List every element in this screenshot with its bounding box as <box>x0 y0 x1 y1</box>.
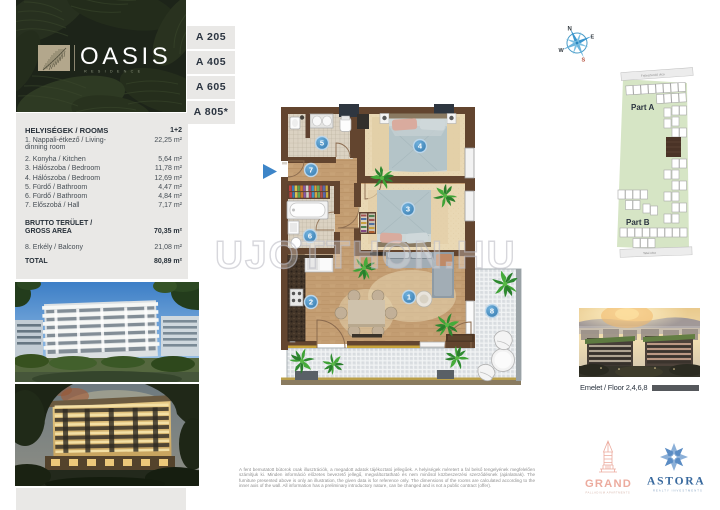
svg-text:2: 2 <box>309 298 313 307</box>
svg-text:S: S <box>582 58 586 64</box>
svg-text:Tatai utca: Tatai utca <box>643 251 656 255</box>
svg-text:8: 8 <box>490 307 494 316</box>
svg-text:ASTORA: ASTORA <box>647 476 705 488</box>
svg-text:N: N <box>568 27 572 33</box>
svg-text:PALLADIUM APARTMENTS: PALLADIUM APARTMENTS <box>586 491 631 495</box>
svg-text:7: 7 <box>309 166 313 175</box>
svg-text:3: 3 <box>406 205 410 214</box>
svg-text:R E S I D E N C E: R E S I D E N C E <box>84 70 142 74</box>
svg-text:E: E <box>591 35 595 41</box>
svg-text:REALTY INVESTMENTS: REALTY INVESTMENTS <box>653 489 703 493</box>
svg-text:GRAND: GRAND <box>585 478 632 490</box>
svg-text:Part A: Part A <box>631 103 654 112</box>
svg-text:5: 5 <box>320 139 324 148</box>
svg-text:W: W <box>559 48 565 54</box>
svg-text:OASIS: OASIS <box>80 43 171 70</box>
svg-text:1: 1 <box>407 293 411 302</box>
svg-text:Part B: Part B <box>626 218 650 227</box>
